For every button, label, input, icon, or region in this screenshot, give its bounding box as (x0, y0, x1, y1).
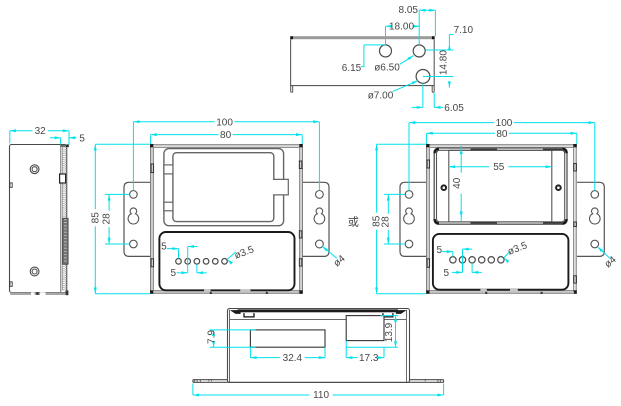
svg-text:85: 85 (90, 212, 101, 224)
svg-text:5: 5 (444, 268, 450, 279)
svg-text:55: 55 (493, 162, 505, 173)
svg-text:17.3: 17.3 (359, 353, 379, 364)
svg-text:32.4: 32.4 (283, 353, 303, 364)
svg-text:ø6.50: ø6.50 (374, 62, 400, 73)
svg-text:14.80: 14.80 (438, 50, 449, 75)
svg-text:5: 5 (79, 134, 85, 145)
svg-text:28: 28 (101, 213, 112, 225)
svg-text:40: 40 (452, 177, 463, 189)
svg-text:7.10: 7.10 (454, 25, 474, 36)
svg-text:5: 5 (171, 268, 177, 279)
svg-text:6.15: 6.15 (342, 63, 362, 74)
svg-text:32: 32 (35, 126, 47, 137)
svg-text:5: 5 (161, 242, 167, 253)
svg-text:13.9: 13.9 (384, 322, 395, 342)
svg-text:ø7.00: ø7.00 (368, 90, 394, 101)
svg-text:7.9: 7.9 (207, 330, 218, 344)
svg-text:80: 80 (496, 129, 508, 140)
svg-text:或: 或 (348, 216, 359, 229)
svg-text:6.05: 6.05 (444, 103, 464, 114)
svg-text:110: 110 (313, 390, 329, 401)
svg-text:80: 80 (220, 130, 232, 141)
svg-text:100: 100 (216, 117, 233, 128)
svg-text:5: 5 (437, 245, 443, 256)
svg-text:100: 100 (496, 118, 513, 129)
svg-text:28: 28 (381, 216, 392, 228)
svg-text:8.05: 8.05 (399, 5, 419, 16)
svg-text:18.00: 18.00 (389, 22, 414, 33)
